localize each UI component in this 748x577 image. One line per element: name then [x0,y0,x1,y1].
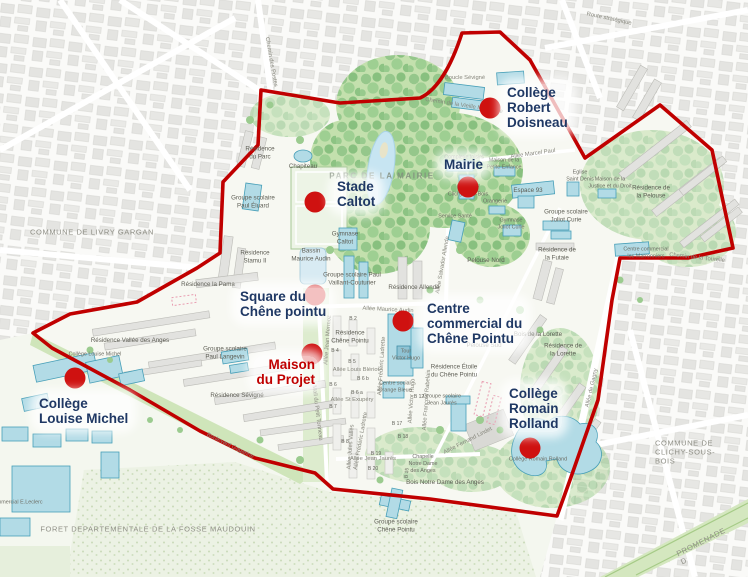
bassin-maurice-audin-pool [300,248,326,284]
map-graphic [0,0,748,577]
mairie-marker-dot[interactable] [458,177,479,198]
stade-caltot-marker-dot[interactable] [305,192,326,213]
centre-commercial-du-chene-pointu-marker-dot[interactable] [393,311,414,332]
map-screenshot: COMMUNE DE LIVRY GARGANCOMMUNE DE CLICHY… [0,0,748,577]
college-robert-doisneau-marker-dot[interactable] [480,98,501,119]
square-du-chene-pointu-marker-dot[interactable] [305,285,326,306]
green-strip [0,546,70,577]
tour-victor-hugo-building [397,346,410,359]
college-louise-michel-marker-dot[interactable] [65,368,86,389]
college-romain-rolland-marker-dot[interactable] [520,438,541,459]
maison-du-projet-marker-dot[interactable] [302,344,323,365]
